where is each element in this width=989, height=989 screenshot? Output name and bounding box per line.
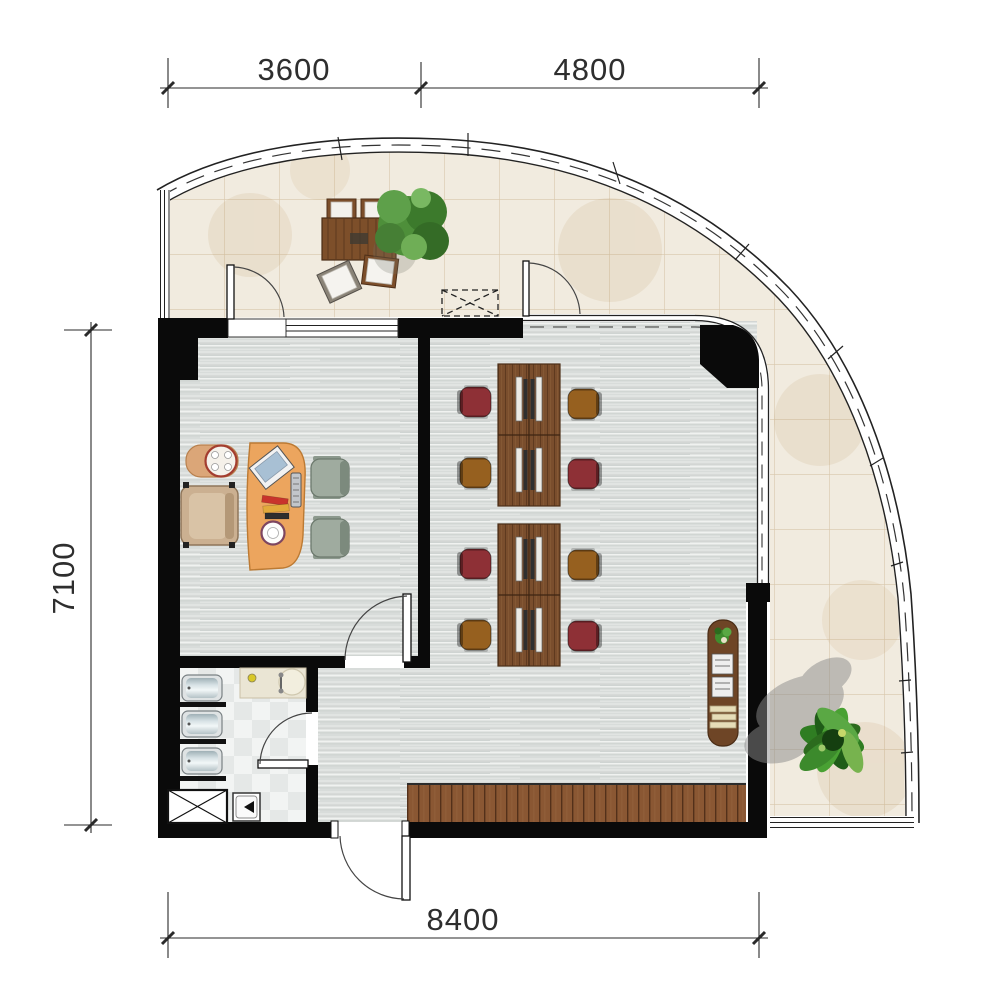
dimension-label-3600: 3600	[258, 52, 331, 87]
manager-south-wall	[158, 656, 345, 668]
task-chair	[568, 619, 602, 653]
task-chair	[457, 385, 491, 419]
south-wall-west	[158, 822, 337, 838]
urinal-fixtures	[180, 675, 226, 781]
dimension-label-7100: 7100	[46, 542, 81, 615]
task-chair	[568, 457, 602, 491]
floor-plan-canvas: 3600 4800 7100 8400	[0, 0, 989, 989]
coffee-cup	[262, 522, 285, 545]
terrace-west-window	[159, 190, 170, 318]
shower-stall	[233, 793, 260, 821]
side-table	[186, 445, 238, 477]
task-chair	[568, 387, 602, 421]
west-wall	[158, 318, 180, 838]
guest-chair-2	[311, 516, 349, 559]
dimension-label-4800: 4800	[554, 52, 627, 87]
console-books	[710, 706, 736, 728]
south-wall-east	[407, 822, 766, 838]
manager-terrace-door-threshold	[228, 319, 286, 337]
partition-wall	[418, 336, 430, 662]
desk-books	[262, 495, 290, 519]
dimension-top	[160, 58, 768, 108]
north-wall-segment-2	[398, 318, 523, 338]
manager-north-window	[285, 319, 398, 337]
executive-chair	[181, 482, 238, 548]
executive-desk	[247, 443, 305, 570]
terrace-south-window	[770, 816, 914, 829]
north-wall-segment-1	[158, 318, 228, 338]
task-chair	[568, 548, 602, 582]
floor-plan-svg: 3600 4800 7100 8400	[0, 0, 989, 989]
bathroom-east-wall-upper	[306, 668, 318, 712]
dimension-label-8400: 8400	[427, 902, 500, 937]
service-shaft	[168, 790, 227, 823]
entry-door	[331, 821, 410, 900]
entry-deck	[407, 783, 746, 822]
vanity-counter	[240, 668, 306, 698]
bathroom-east-wall-lower	[306, 765, 318, 822]
task-chair	[457, 456, 491, 490]
desk-phone	[291, 473, 301, 507]
console-cabinet	[708, 620, 738, 746]
task-chair	[457, 618, 491, 652]
soap-dish	[248, 674, 256, 682]
task-chair	[457, 547, 491, 581]
guest-chair-1	[311, 456, 349, 499]
